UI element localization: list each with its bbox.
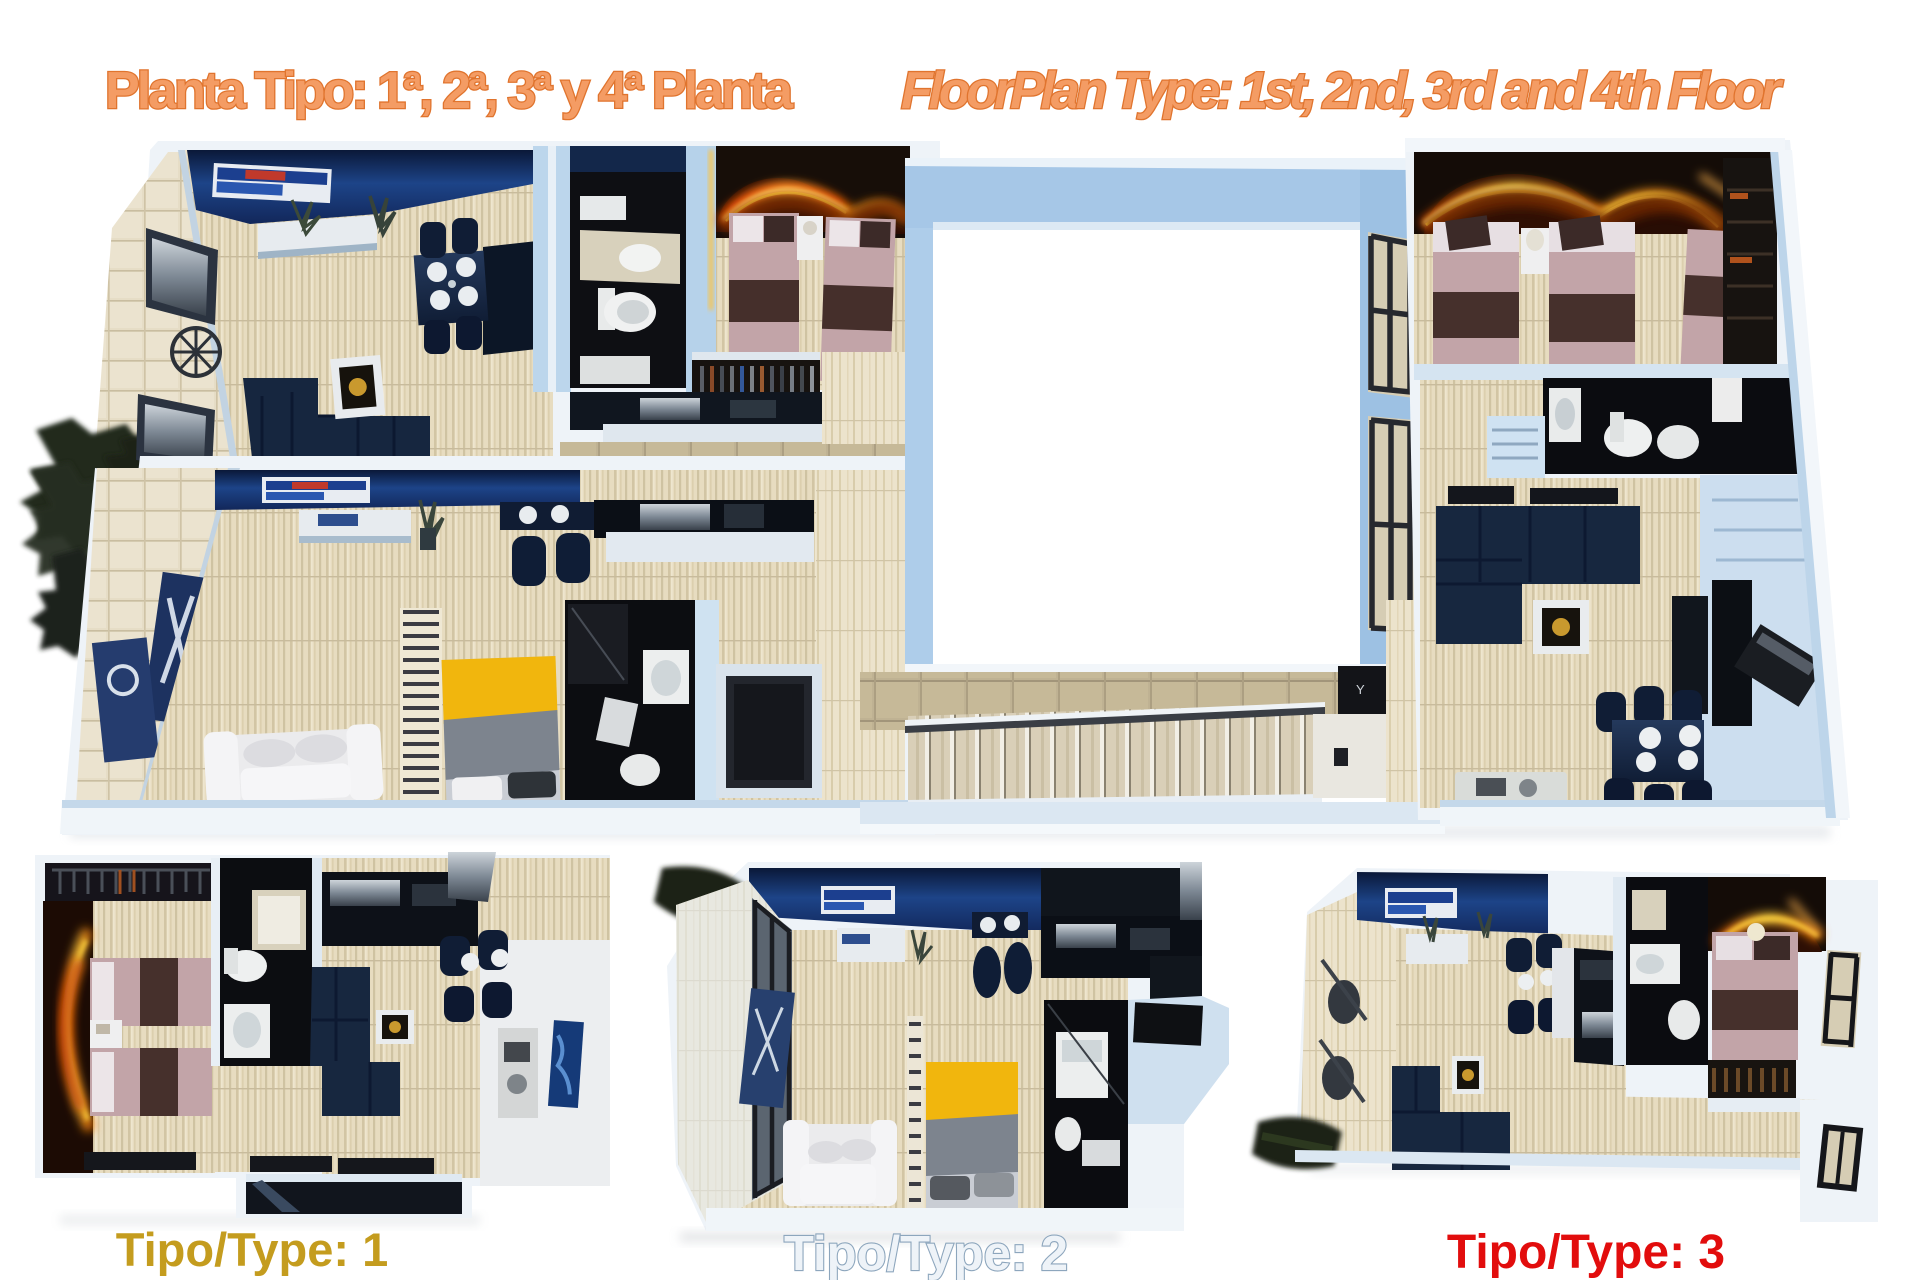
svg-text:Tipo/Type: 3: Tipo/Type: 3 <box>1447 1226 1725 1279</box>
svg-text:Tipo/Type: 2: Tipo/Type: 2 <box>784 1227 1068 1280</box>
svg-text:Y: Y <box>1356 682 1365 697</box>
svg-text:Planta Tipo: 1ª, 2ª, 3ª y 4ª P: Planta Tipo: 1ª, 2ª, 3ª y 4ª Planta <box>105 62 794 120</box>
svg-text:FloorPlan Type: 1st, 2nd, 3rd: FloorPlan Type: 1st, 2nd, 3rd and 4th Fl… <box>901 62 1784 120</box>
svg-text:Tipo/Type: 1: Tipo/Type: 1 <box>116 1223 388 1276</box>
